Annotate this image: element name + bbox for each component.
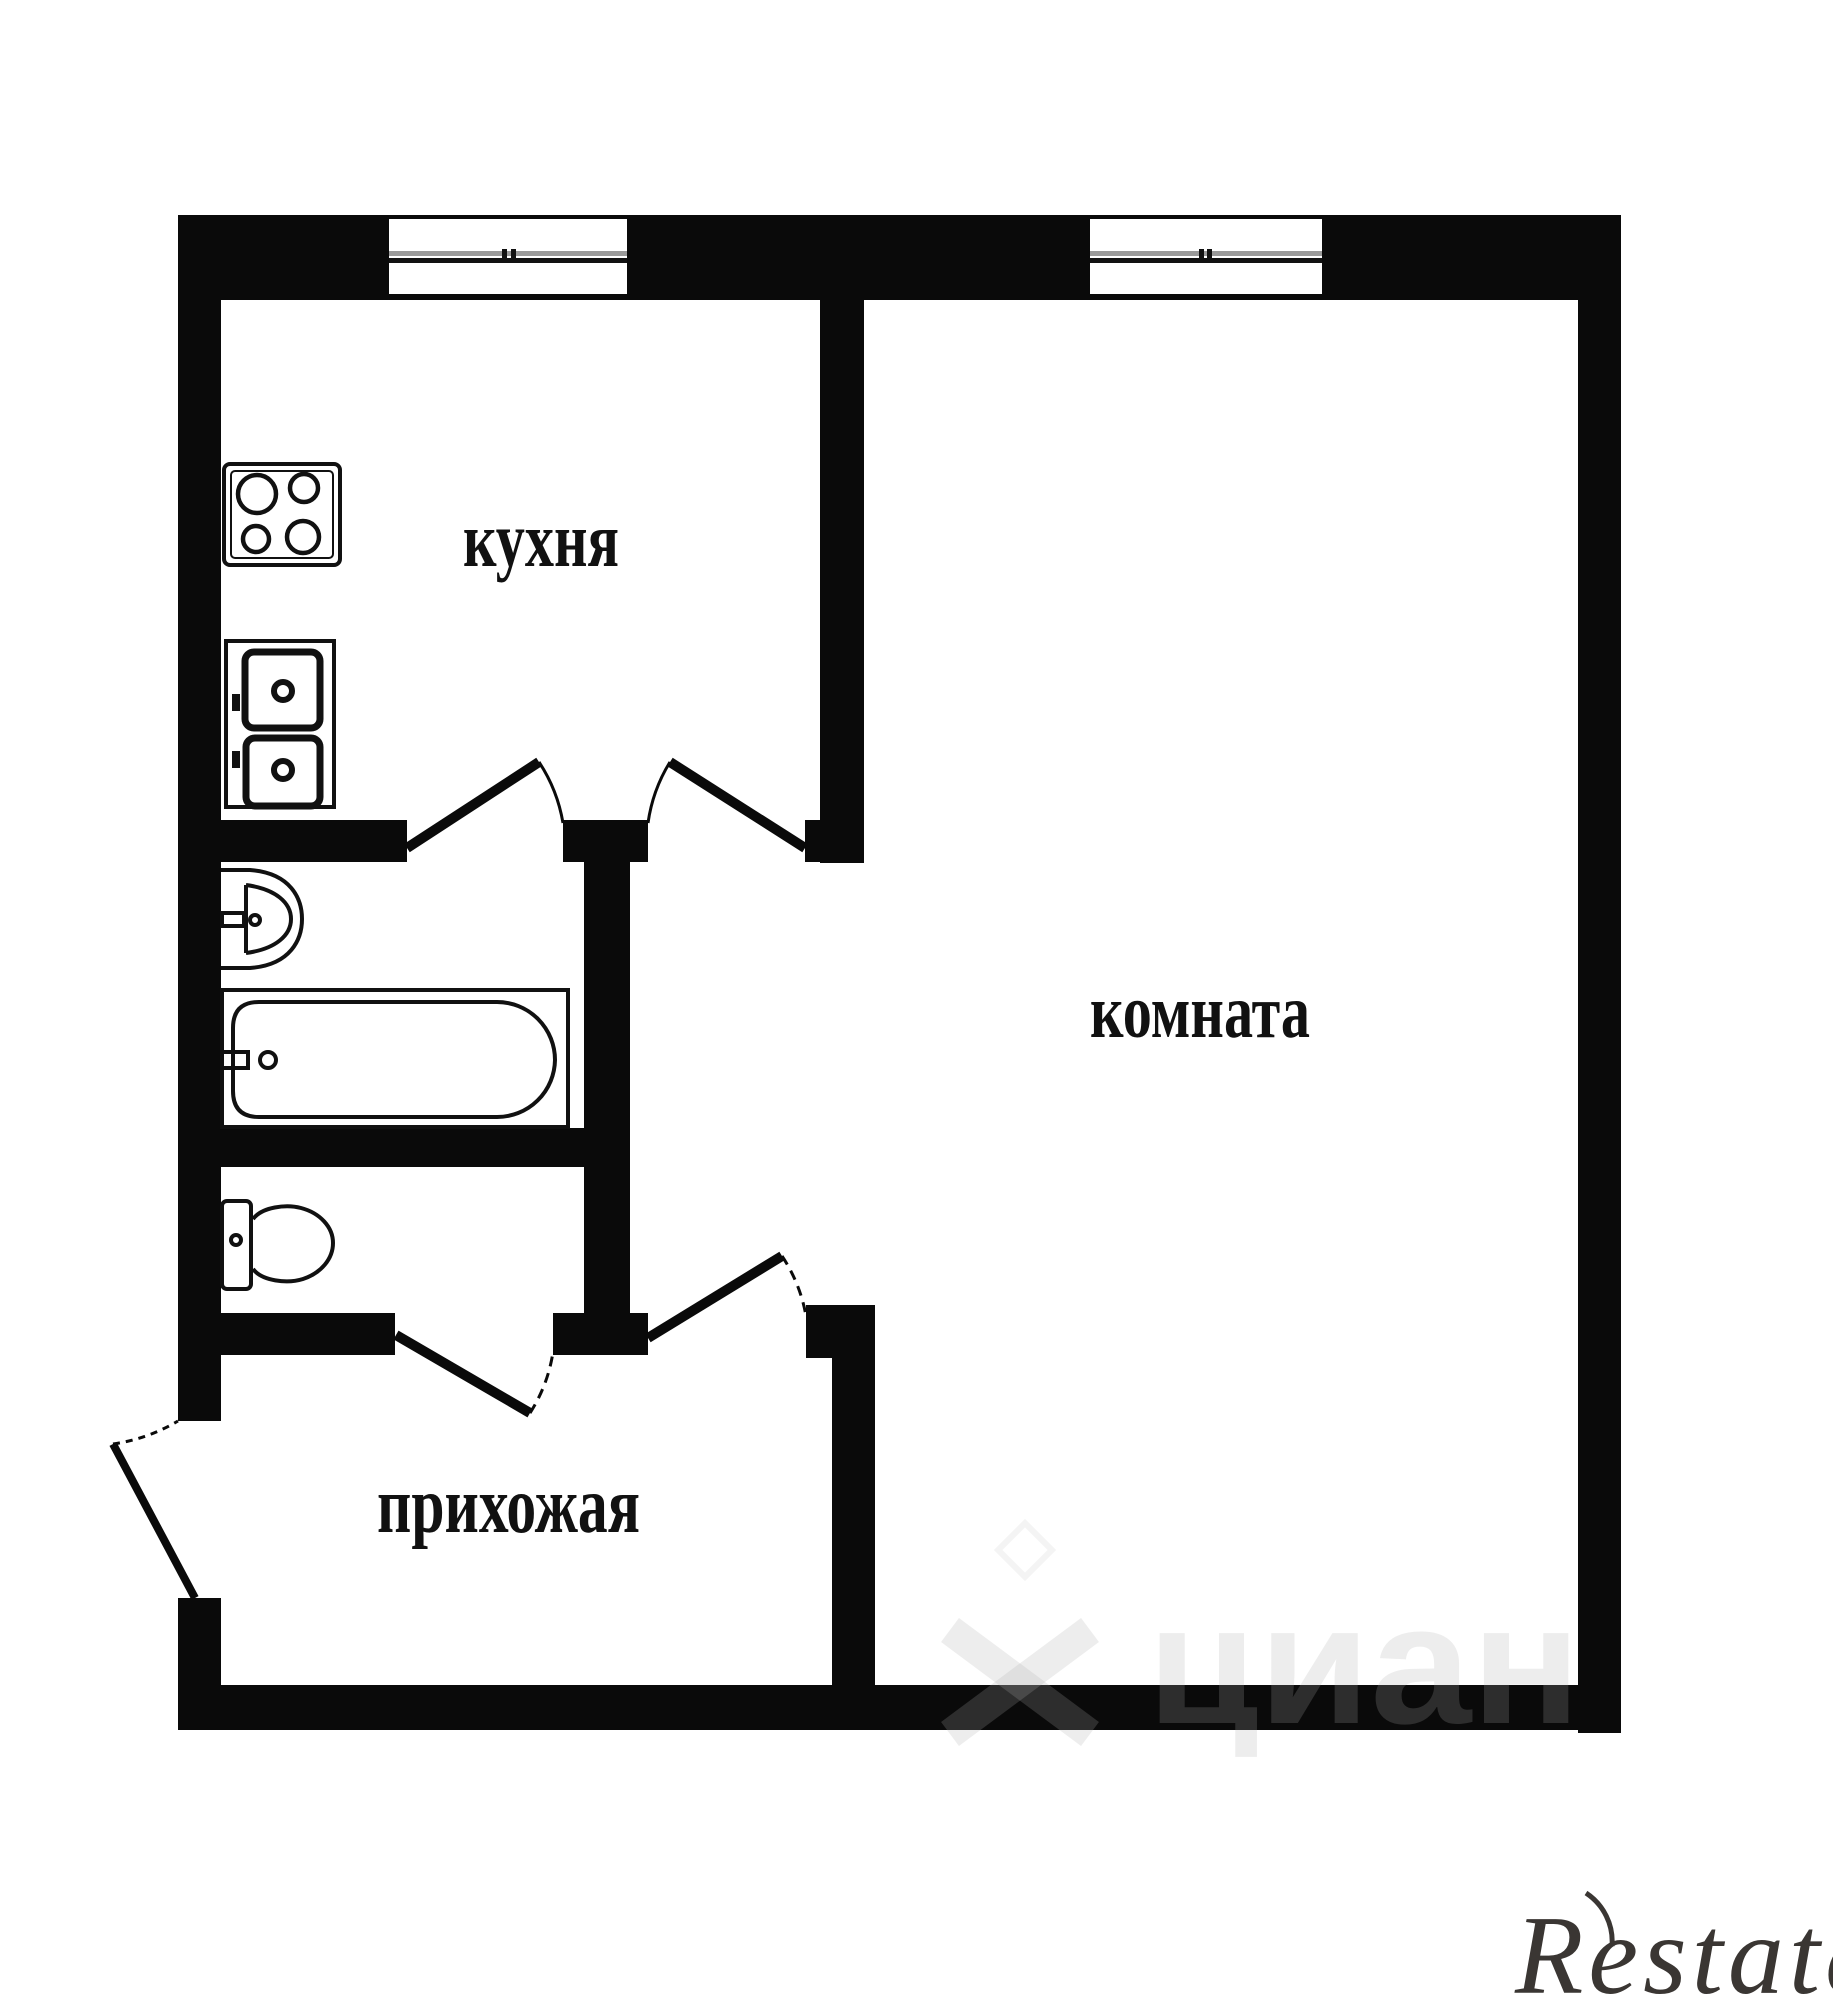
svg-text:комната: комната [1090, 970, 1310, 1054]
svg-text:кухня: кухня [463, 496, 619, 583]
svg-text:циан: циан [1147, 1570, 1581, 1760]
svg-text:прихожая: прихожая [377, 1462, 640, 1550]
svg-text:Restate: Restate [1514, 1894, 1833, 2000]
